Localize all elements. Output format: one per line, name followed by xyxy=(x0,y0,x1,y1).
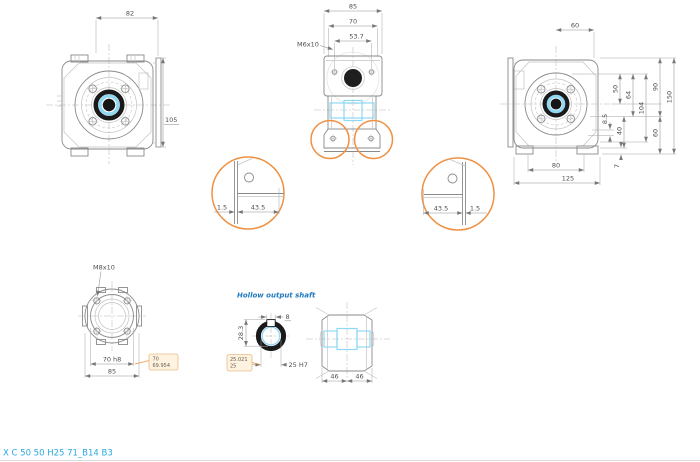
dim-label-43-5-left: 43.5 xyxy=(251,204,265,212)
dim-label-150: 150 xyxy=(666,91,674,103)
callout-25-max: 25.021 xyxy=(230,357,248,363)
dim-label-70-top: 70 xyxy=(349,18,357,26)
view-front-input-side: 82 105 xyxy=(46,10,179,165)
dim-label-82: 82 xyxy=(126,10,134,18)
detail-circle-right xyxy=(422,158,494,230)
product-code: X C 50 50 H25 71_B14 B3 xyxy=(3,449,113,459)
gearbox-dimensional-drawing: 82 105 85 70 53.7 M6x10 xyxy=(0,0,700,462)
view-hollow-shaft-side: 46 46 xyxy=(306,302,390,383)
view-output-flange: M8x10 70 h8 85 70 69.954 xyxy=(78,264,178,379)
motor-flange-plate-edge xyxy=(508,58,513,147)
callout-70-nominal: 70 xyxy=(153,357,159,363)
view-top-input: 85 70 53.7 M6x10 xyxy=(297,3,393,166)
dim-label-8-5: 8.5 xyxy=(601,114,609,124)
dim-label-125: 125 xyxy=(562,175,574,183)
hollow-output-shaft-title: Hollow output shaft xyxy=(237,292,316,300)
view-hollow-shaft-section: Hollow output shaft 8 28.3 25 H7 25.021 … xyxy=(227,292,316,372)
dim-label-28-3: 28.3 xyxy=(237,326,245,340)
keyway-notch xyxy=(267,320,275,327)
dim-label-80: 80 xyxy=(552,162,560,170)
dim-label-8-keyway: 8 xyxy=(286,313,290,321)
dim-label-85-flange: 85 xyxy=(108,368,116,376)
dim-label-46-right: 46 xyxy=(355,373,363,381)
callout-70-tolerance: 69.954 xyxy=(153,363,171,369)
foot-highlight-circle-left xyxy=(311,121,349,159)
dim-label-60-top: 60 xyxy=(571,22,579,30)
dim-label-60-side: 60 xyxy=(652,129,660,137)
callout-25-min: 25 xyxy=(230,364,236,370)
dim-label-104: 104 xyxy=(638,102,646,114)
motor-flange-plate xyxy=(156,58,161,147)
dim-label-43-5-right: 43.5 xyxy=(434,205,448,213)
dim-label-1-5-left: 1.5 xyxy=(217,204,227,212)
thread-label-m8x10: M8x10 xyxy=(93,264,115,272)
dim-label-7: 7 xyxy=(613,164,621,168)
dim-label-70h8: 70 h8 xyxy=(103,356,122,364)
dim-label-46-left: 46 xyxy=(330,373,338,381)
hollow-shaft-highlight xyxy=(330,103,374,118)
dim-label-90: 90 xyxy=(652,83,660,91)
dim-label-1-5-right: 1.5 xyxy=(470,205,480,213)
thread-label-m6x10: M6x10 xyxy=(297,41,319,49)
dim-label-40: 40 xyxy=(616,127,624,135)
detail-circle-left xyxy=(212,157,284,229)
dim-label-25h7: 25 H7 xyxy=(289,361,308,369)
dim-label-105: 105 xyxy=(165,116,177,124)
footer: X C 50 50 H25 71_B14 B3 xyxy=(0,449,700,461)
detail-foot-left: 1.5 43.5 xyxy=(212,157,284,229)
detail-foot-right: 43.5 1.5 xyxy=(422,158,494,230)
input-shaft-bore xyxy=(344,69,362,87)
dim-label-50: 50 xyxy=(612,85,620,93)
view-back-output-side: 60 50 64 104 90 60 150 40 8.5 7 xyxy=(500,22,676,186)
dim-label-64: 64 xyxy=(625,91,633,99)
technical-drawing-page: 82 105 85 70 53.7 M6x10 xyxy=(0,0,700,462)
dim-label-53-7: 53.7 xyxy=(349,33,363,41)
dim-label-85-top: 85 xyxy=(349,3,357,11)
